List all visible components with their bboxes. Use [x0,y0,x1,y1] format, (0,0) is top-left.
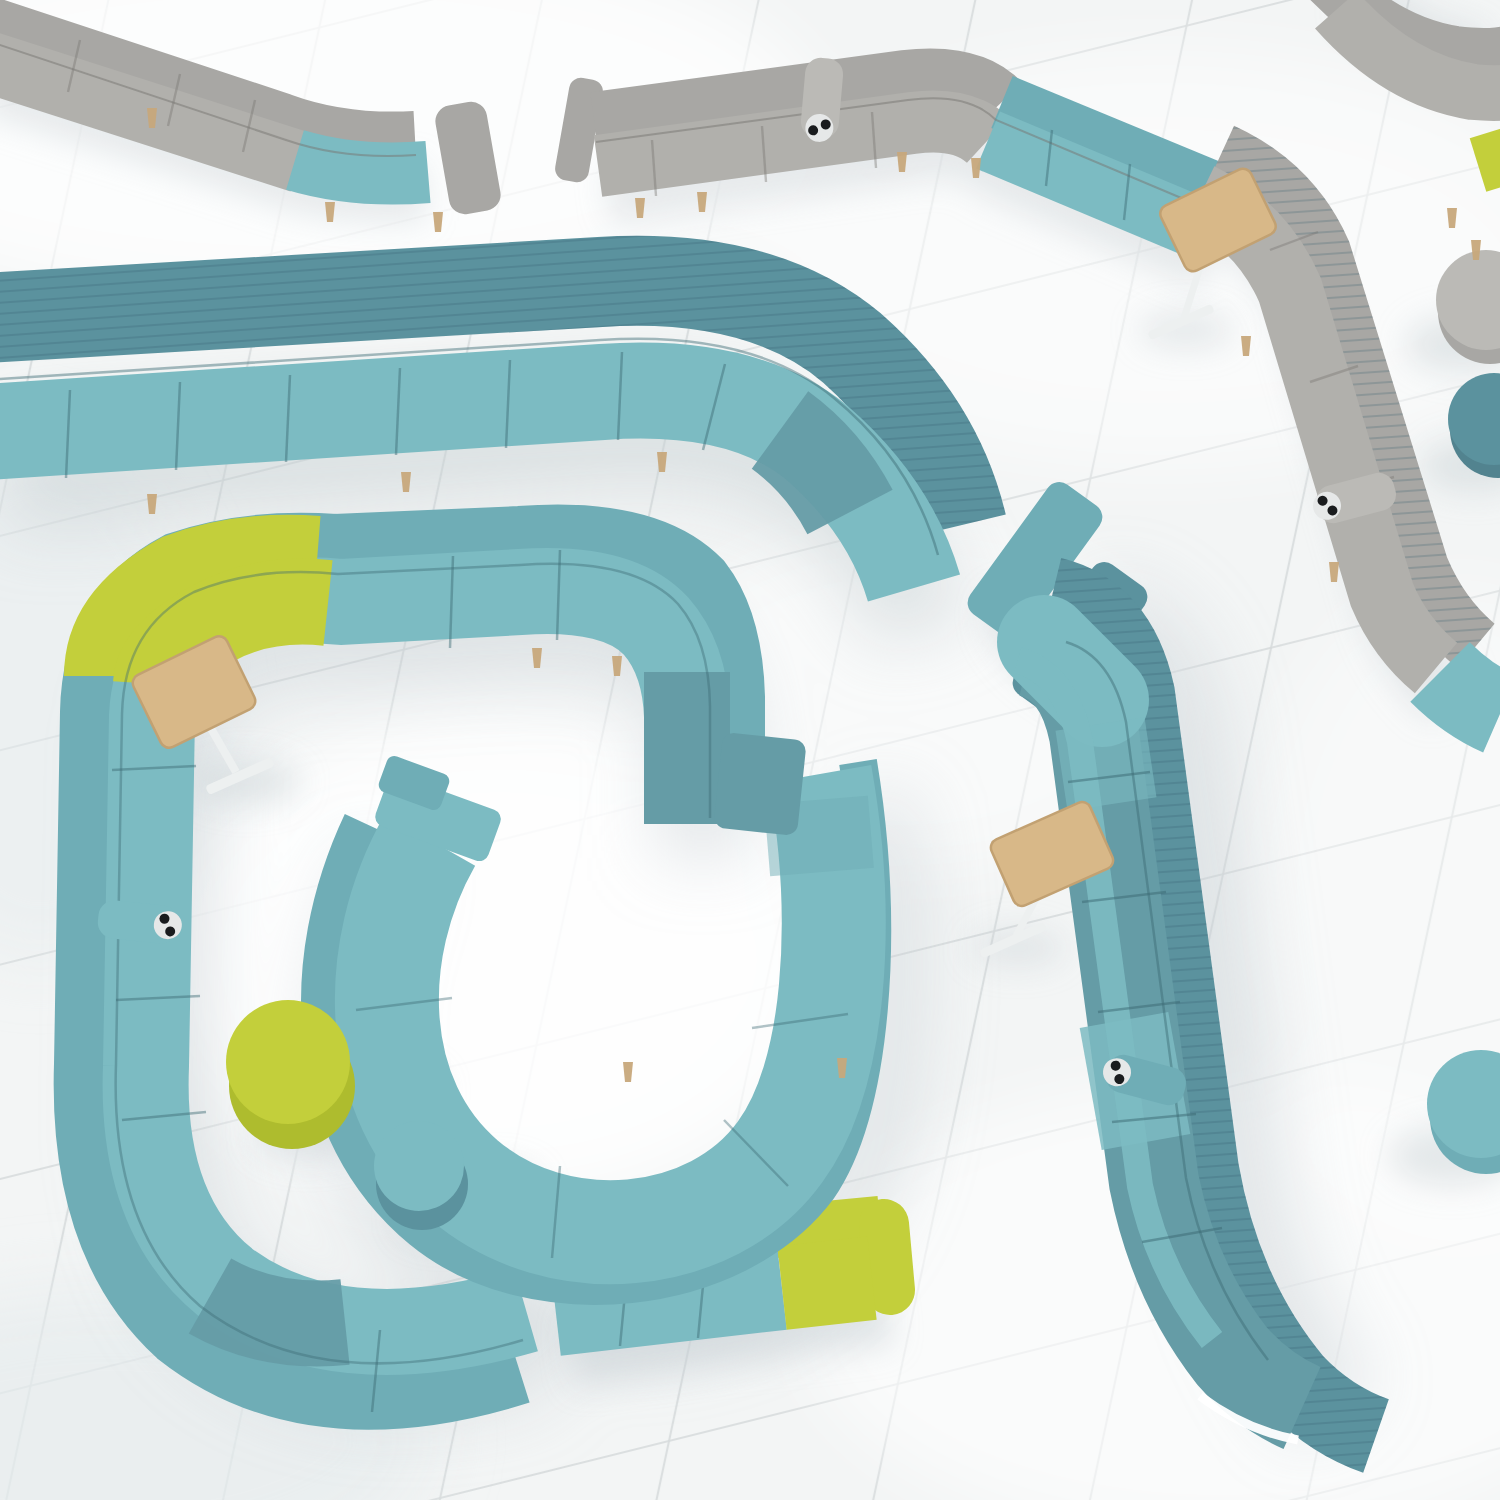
bench-arm-green [884,1224,890,1290]
seat-light-segment [1100,724,1112,804]
pouf-yellow-large [226,1000,355,1149]
pouf-top [226,1000,350,1124]
loop-seat-dark-segment [780,430,850,512]
sofa-seat-teal-end [1440,672,1500,714]
shadow-table-1 [192,760,300,804]
sofa-seat-green [1478,152,1500,165]
sofa-seat-teal-corner [295,160,428,174]
u-sofa-seat-shaded-tip [816,800,822,872]
spiral-seat-dark-corner [210,1296,345,1324]
pouf-top [374,1121,464,1211]
render-stage [0,0,1500,1500]
dark-back-panel [713,732,807,836]
bench-seat-green [782,1278,872,1288]
lounge-render [0,0,1500,1500]
